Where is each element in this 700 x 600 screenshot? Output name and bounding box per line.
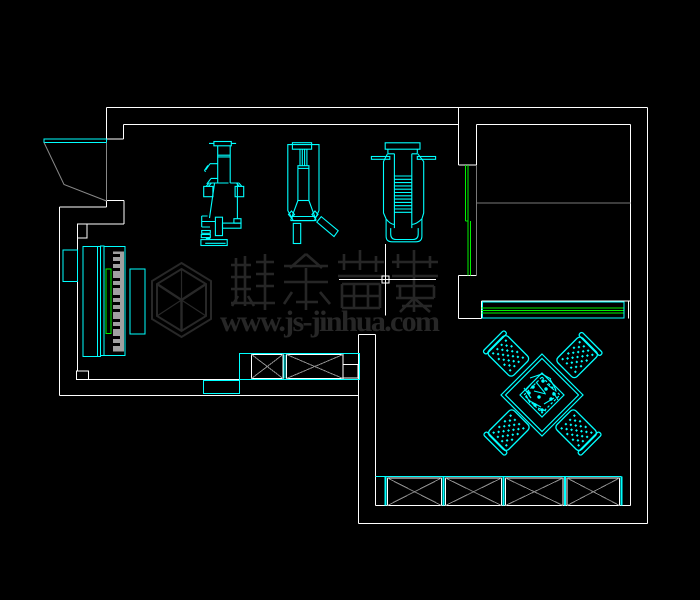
svg-text:www.js-jinhua.com: www.js-jinhua.com [220, 305, 440, 338]
